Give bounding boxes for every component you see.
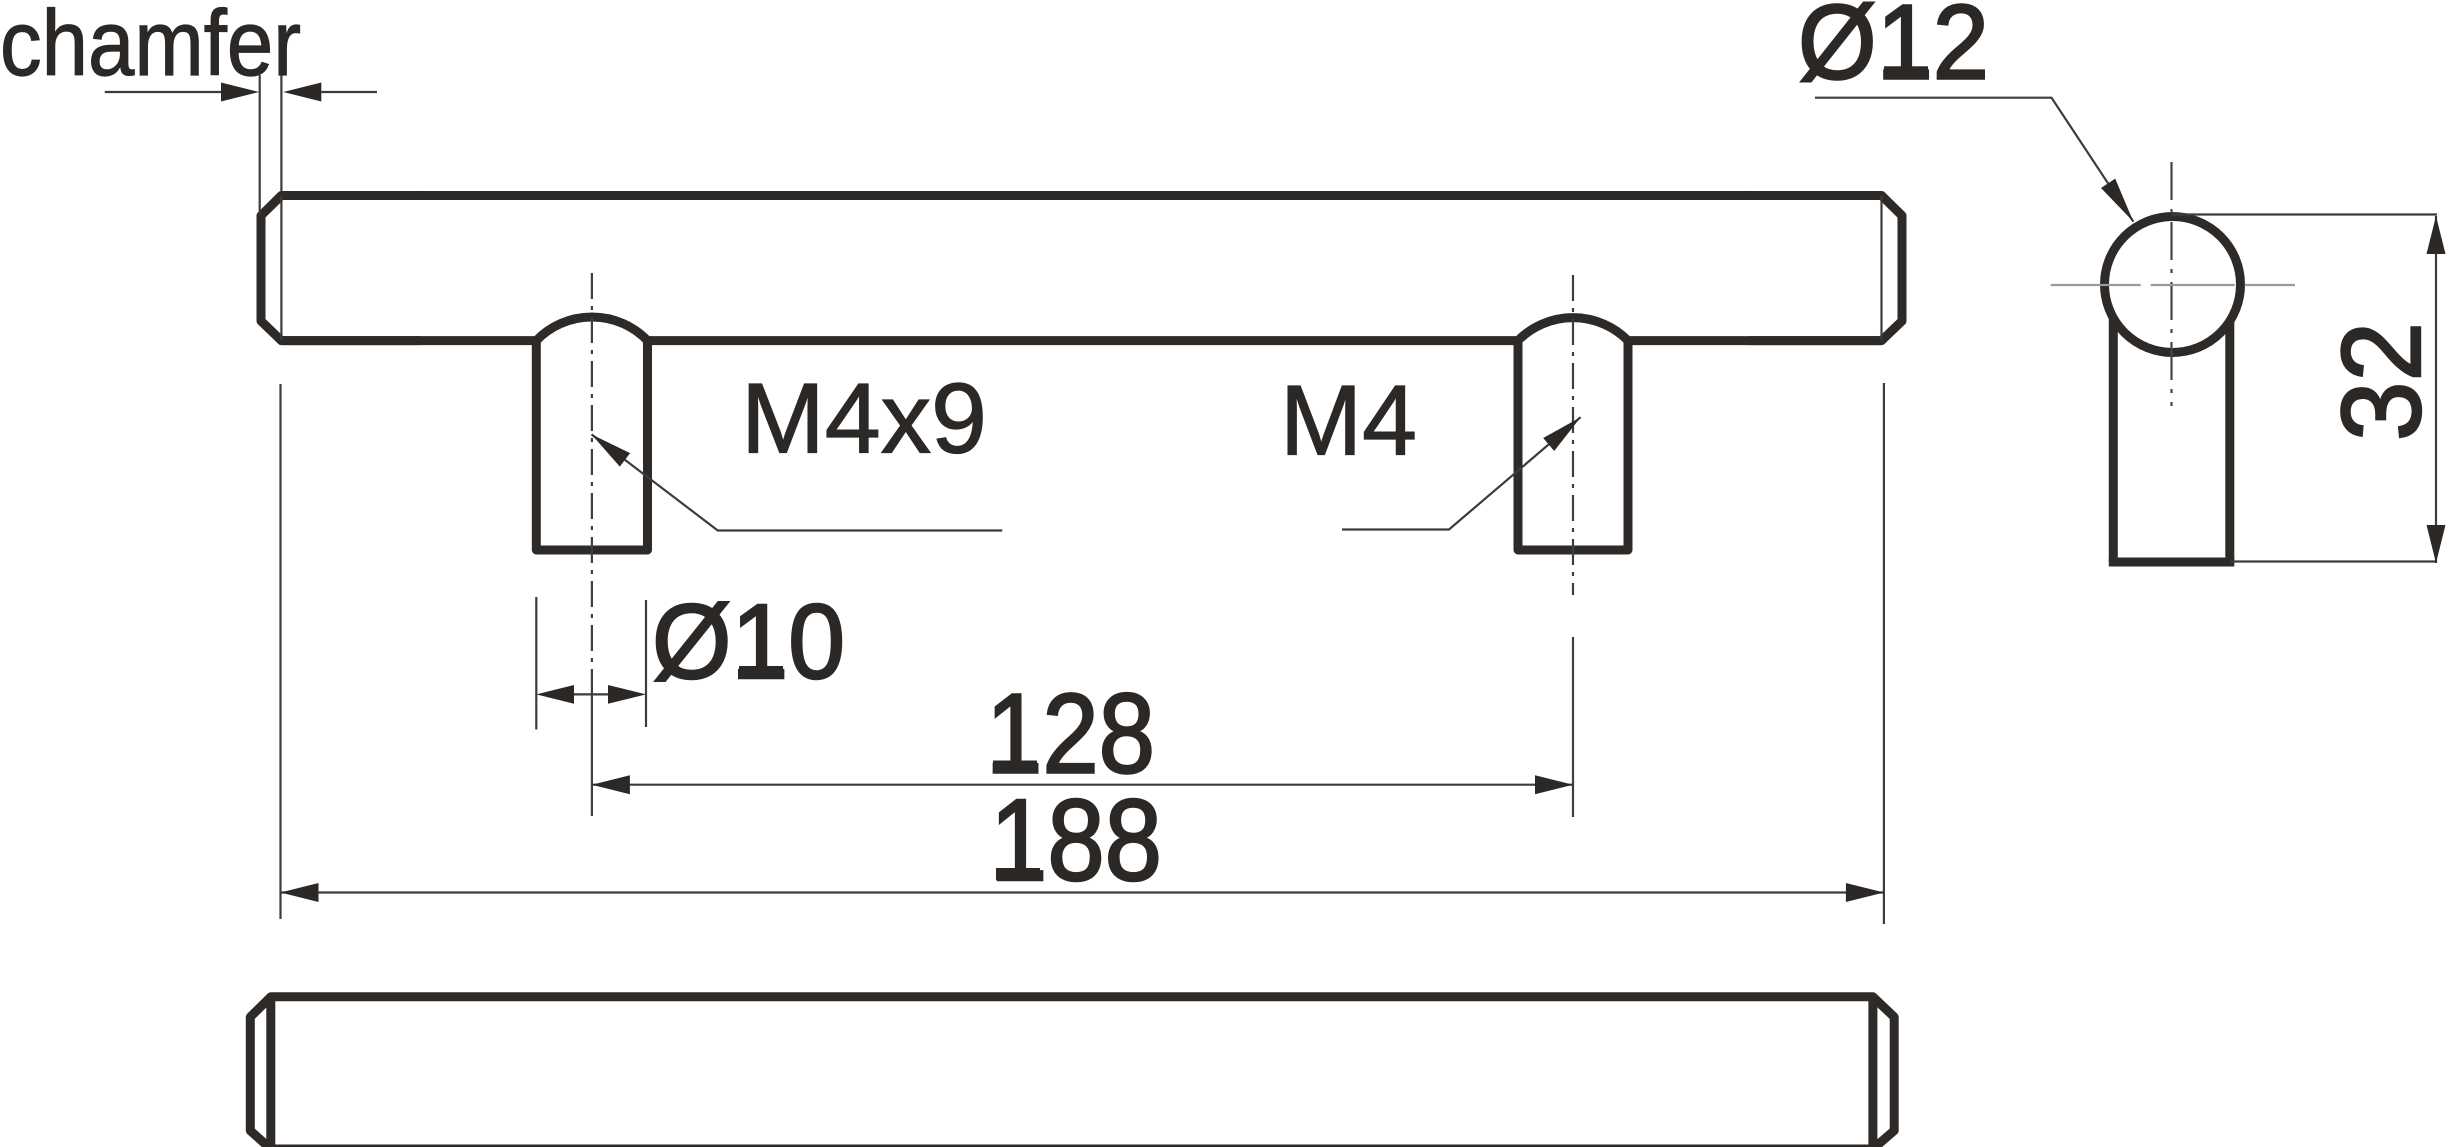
svg-text:Ø12: Ø12 (1798, 0, 1989, 101)
svg-text:M4: M4 (1280, 365, 1417, 476)
svg-text:188: 188 (990, 775, 1162, 905)
svg-text:chamfer: chamfer (0, 0, 301, 95)
svg-text:Ø10: Ø10 (652, 583, 845, 701)
svg-text:M4x9: M4x9 (741, 363, 987, 474)
svg-text:32: 32 (2319, 322, 2444, 441)
